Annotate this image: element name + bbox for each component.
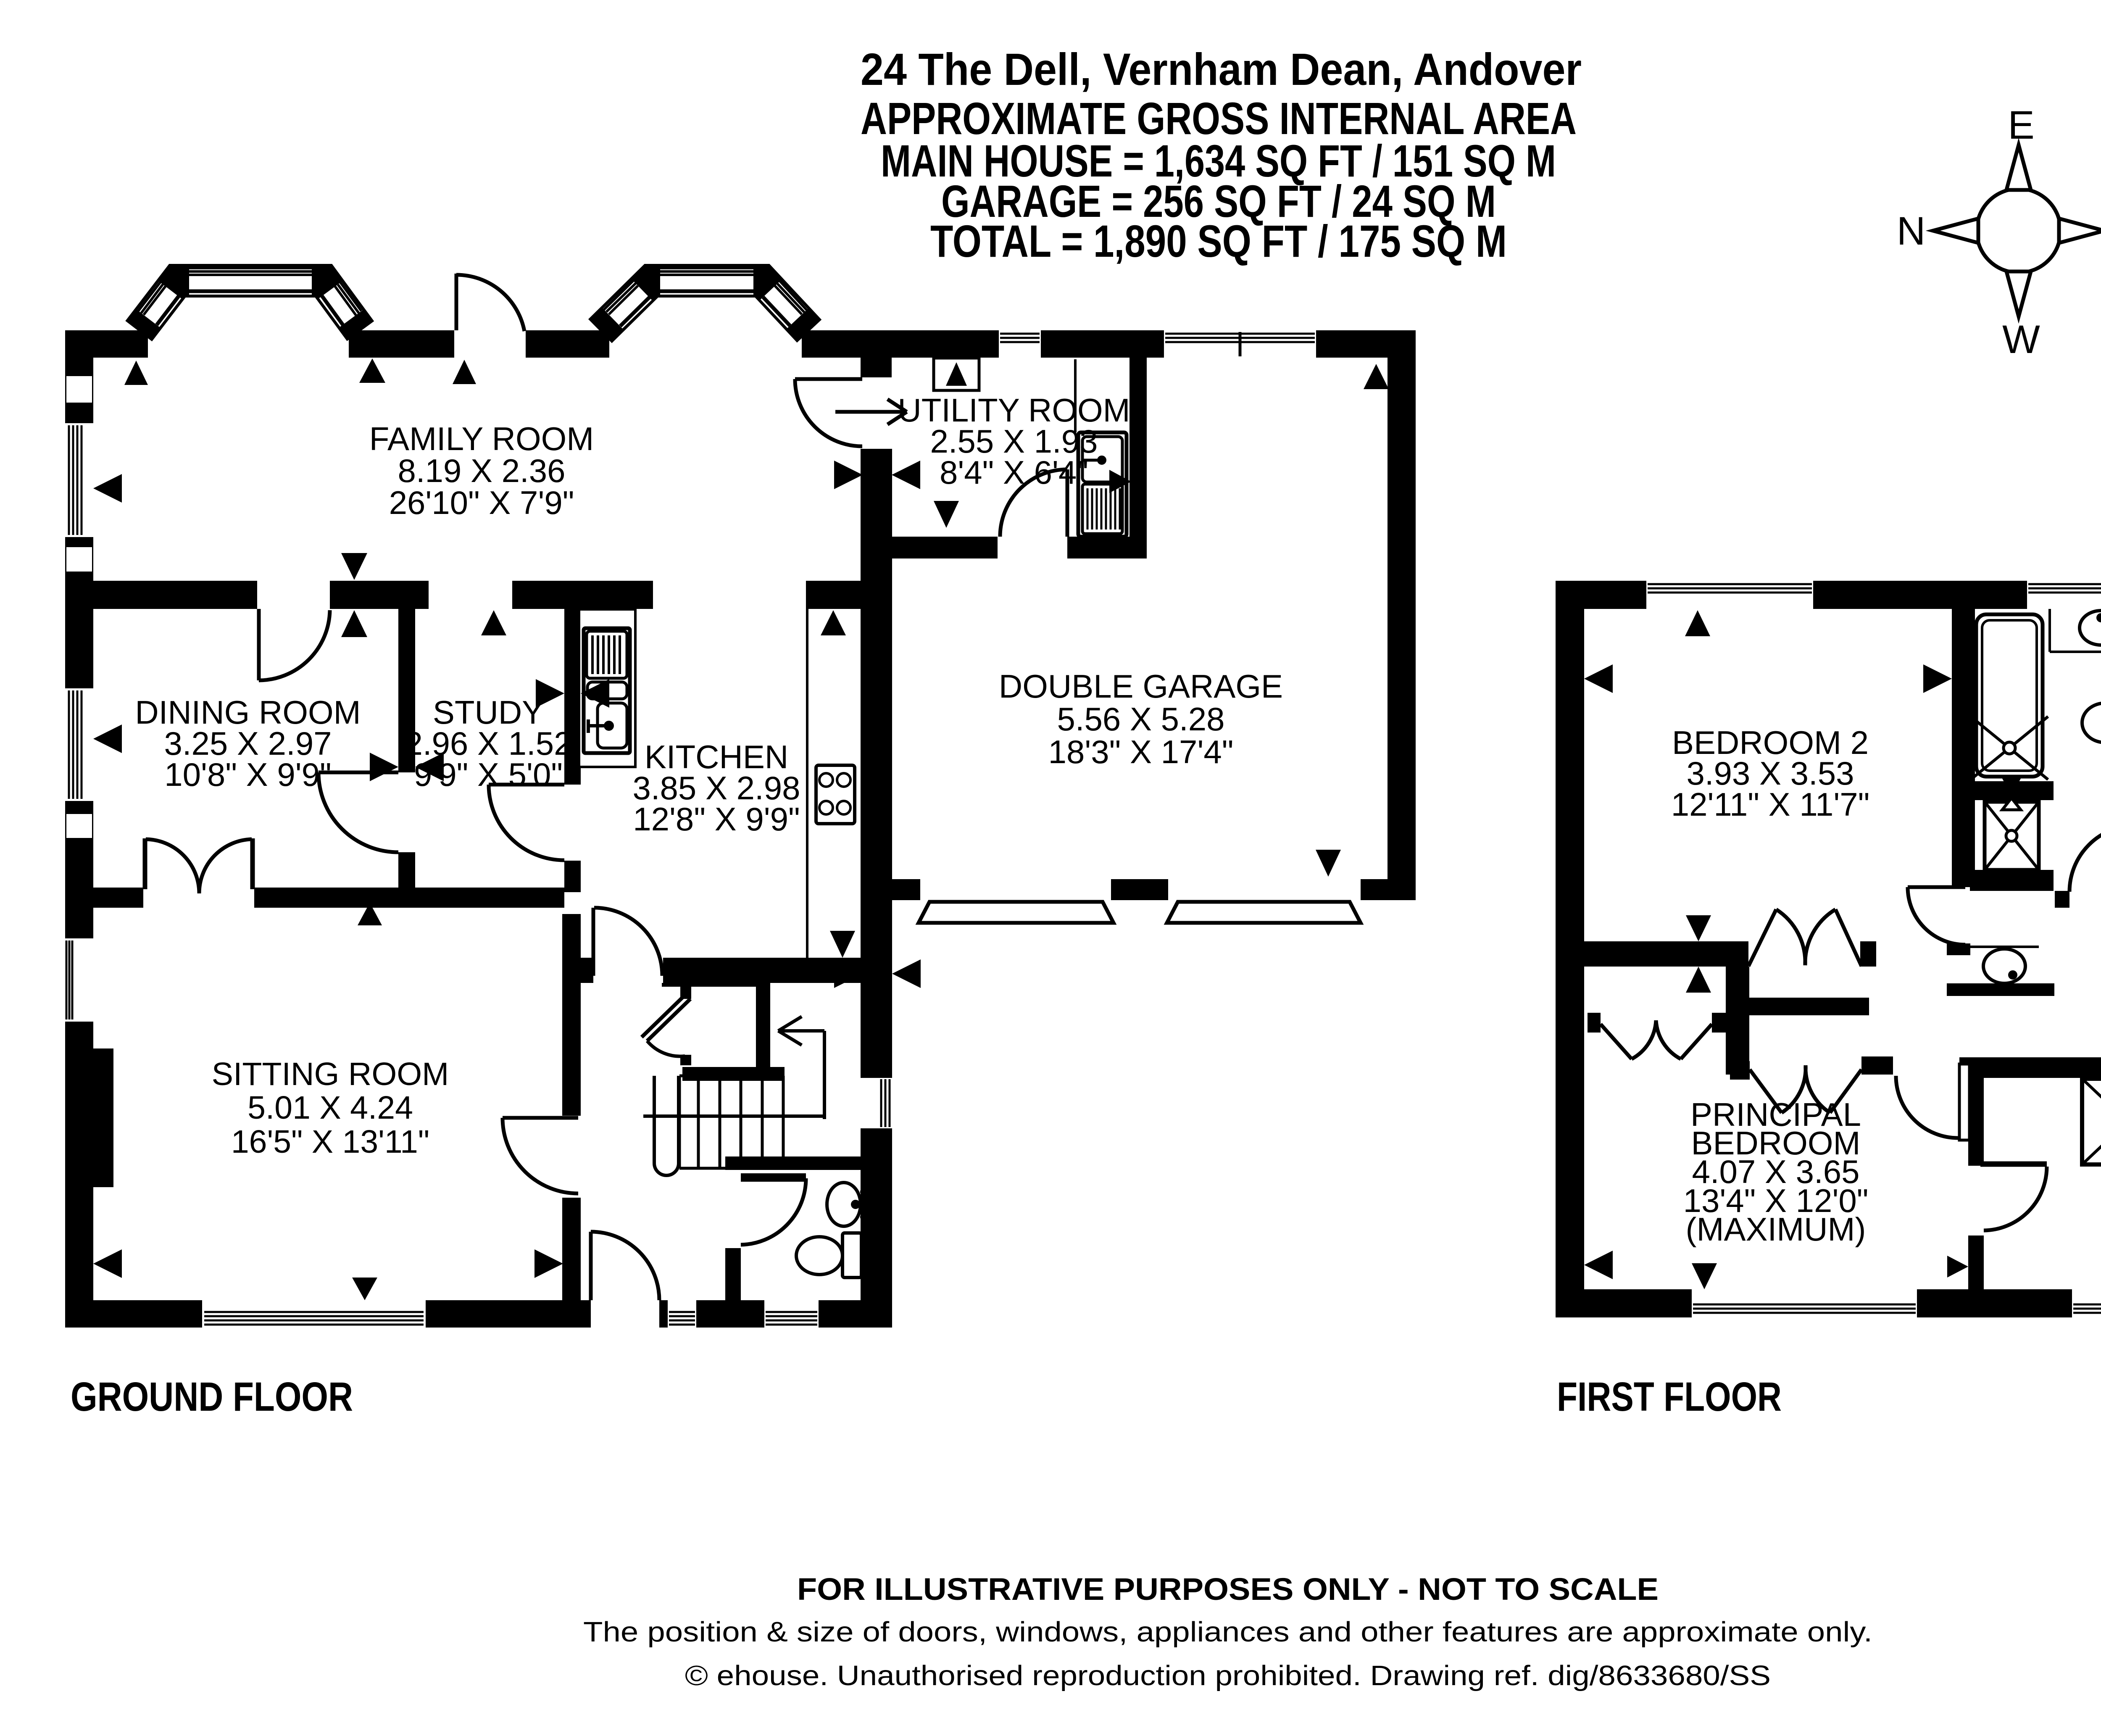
svg-text:18'3" X 17'4": 18'3" X 17'4"	[1048, 733, 1234, 770]
svg-text:5.56 X 5.28: 5.56 X 5.28	[1057, 701, 1225, 738]
svg-text:The position & size of doors,: The position & size of doors, windows, a…	[583, 1616, 1872, 1648]
svg-text:TOTAL = 1,890 SQ FT / 175 SQ M: TOTAL = 1,890 SQ FT / 175 SQ M	[930, 216, 1507, 266]
svg-text:26'10" X 7'9": 26'10" X 7'9"	[389, 484, 574, 521]
svg-text:E: E	[2008, 103, 2034, 148]
svg-text:5.01 X 4.24: 5.01 X 4.24	[247, 1090, 413, 1126]
svg-text:SITTING ROOM: SITTING ROOM	[212, 1056, 449, 1092]
svg-text:(MAXIMUM): (MAXIMUM)	[1686, 1211, 1866, 1248]
svg-text:FIRST FLOOR: FIRST FLOOR	[1557, 1374, 1782, 1420]
svg-text:9'9" X 5'0": 9'9" X 5'0"	[414, 756, 563, 793]
svg-text:© ehouse. Unauthorised reprodu: © ehouse. Unauthorised reproduction proh…	[685, 1660, 1771, 1691]
svg-text:12'11" X 11'7": 12'11" X 11'7"	[1671, 786, 1870, 823]
svg-text:12'8" X 9'9": 12'8" X 9'9"	[633, 801, 800, 838]
svg-text:FAMILY ROOM: FAMILY ROOM	[369, 420, 594, 457]
svg-text:FOR ILLUSTRATIVE PURPOSES ONLY: FOR ILLUSTRATIVE PURPOSES ONLY - NOT TO …	[797, 1572, 1659, 1607]
svg-text:10'8" X 9'9": 10'8" X 9'9"	[164, 756, 331, 793]
svg-text:16'5" X 13'11": 16'5" X 13'11"	[231, 1124, 429, 1160]
svg-text:W: W	[2002, 317, 2040, 362]
svg-text:DOUBLE GARAGE: DOUBLE GARAGE	[999, 668, 1283, 705]
svg-text:N: N	[1897, 209, 1926, 253]
svg-text:8.19 X 2.36: 8.19 X 2.36	[398, 452, 566, 489]
svg-text:GROUND FLOOR: GROUND FLOOR	[71, 1374, 353, 1420]
svg-text:24 The Dell, Vernham Dean, And: 24 The Dell, Vernham Dean, Andover	[861, 44, 1582, 95]
svg-text:8'4" X 6'4": 8'4" X 6'4"	[940, 454, 1088, 491]
